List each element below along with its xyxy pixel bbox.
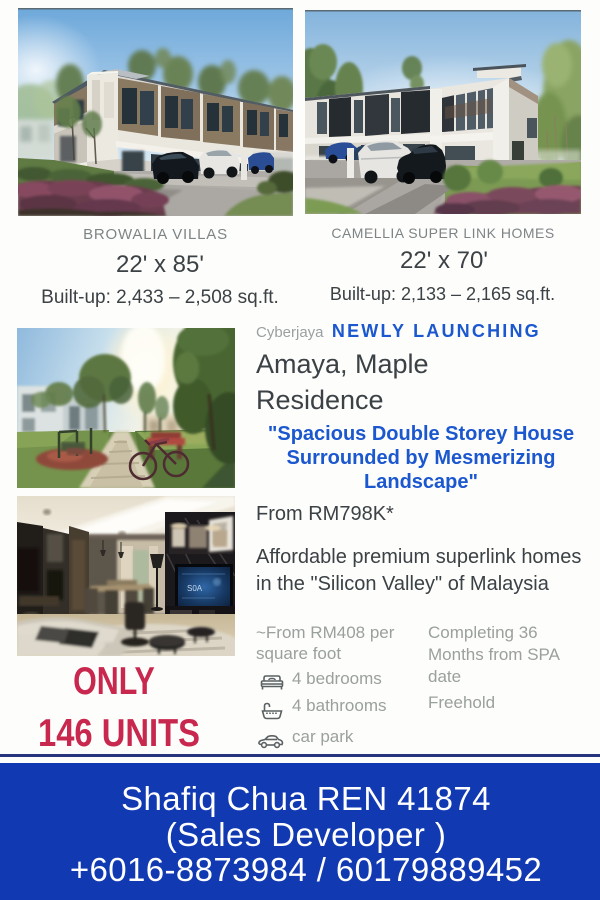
svg-text:S0A: S0A bbox=[187, 584, 203, 593]
